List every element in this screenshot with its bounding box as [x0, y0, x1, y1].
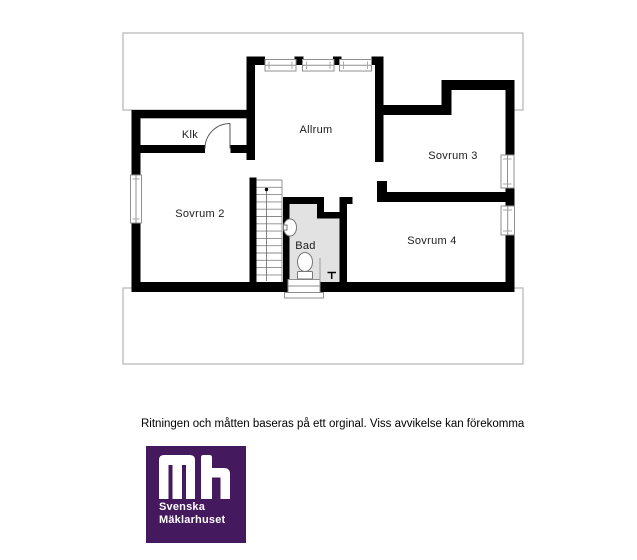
- room-label-allrum: Allrum: [300, 124, 333, 136]
- toilet-icon: [298, 253, 313, 280]
- sink-icon: [284, 219, 297, 236]
- sovrum4-window: [501, 206, 515, 235]
- stair-direction-dot: [265, 188, 268, 191]
- sovrum3-window: [501, 155, 514, 188]
- room-label-sovrum4: Sovrum 4: [407, 235, 456, 247]
- stairs: [257, 180, 283, 282]
- mh-monogram-icon: [159, 455, 230, 499]
- floorplan-page: Klk Allrum Sovrum 3 Sovrum 2 Bad Sovrum …: [0, 0, 637, 560]
- brand-name: Svenska Mäklarhuset: [159, 501, 225, 526]
- room-label-klk: Klk: [182, 129, 198, 141]
- allrum-window-1: [265, 60, 296, 72]
- allrum-window-3: [340, 60, 372, 72]
- room-label-sovrum3: Sovrum 3: [428, 150, 477, 162]
- floorplan-drawing: [0, 0, 637, 560]
- disclaimer-text: Ritningen och måtten baseras på ett orgi…: [141, 418, 524, 430]
- klk-door: [205, 124, 230, 149]
- allrum-window-2: [303, 60, 335, 72]
- room-label-sovrum2: Sovrum 2: [175, 208, 224, 220]
- bath-window: [285, 280, 324, 299]
- brand-name-line2: Mäklarhuset: [159, 514, 225, 527]
- brand-logo: Svenska Mäklarhuset: [146, 446, 246, 543]
- brand-name-line1: Svenska: [159, 501, 225, 514]
- room-label-bad: Bad: [295, 240, 315, 252]
- sovrum2-window: [131, 175, 142, 223]
